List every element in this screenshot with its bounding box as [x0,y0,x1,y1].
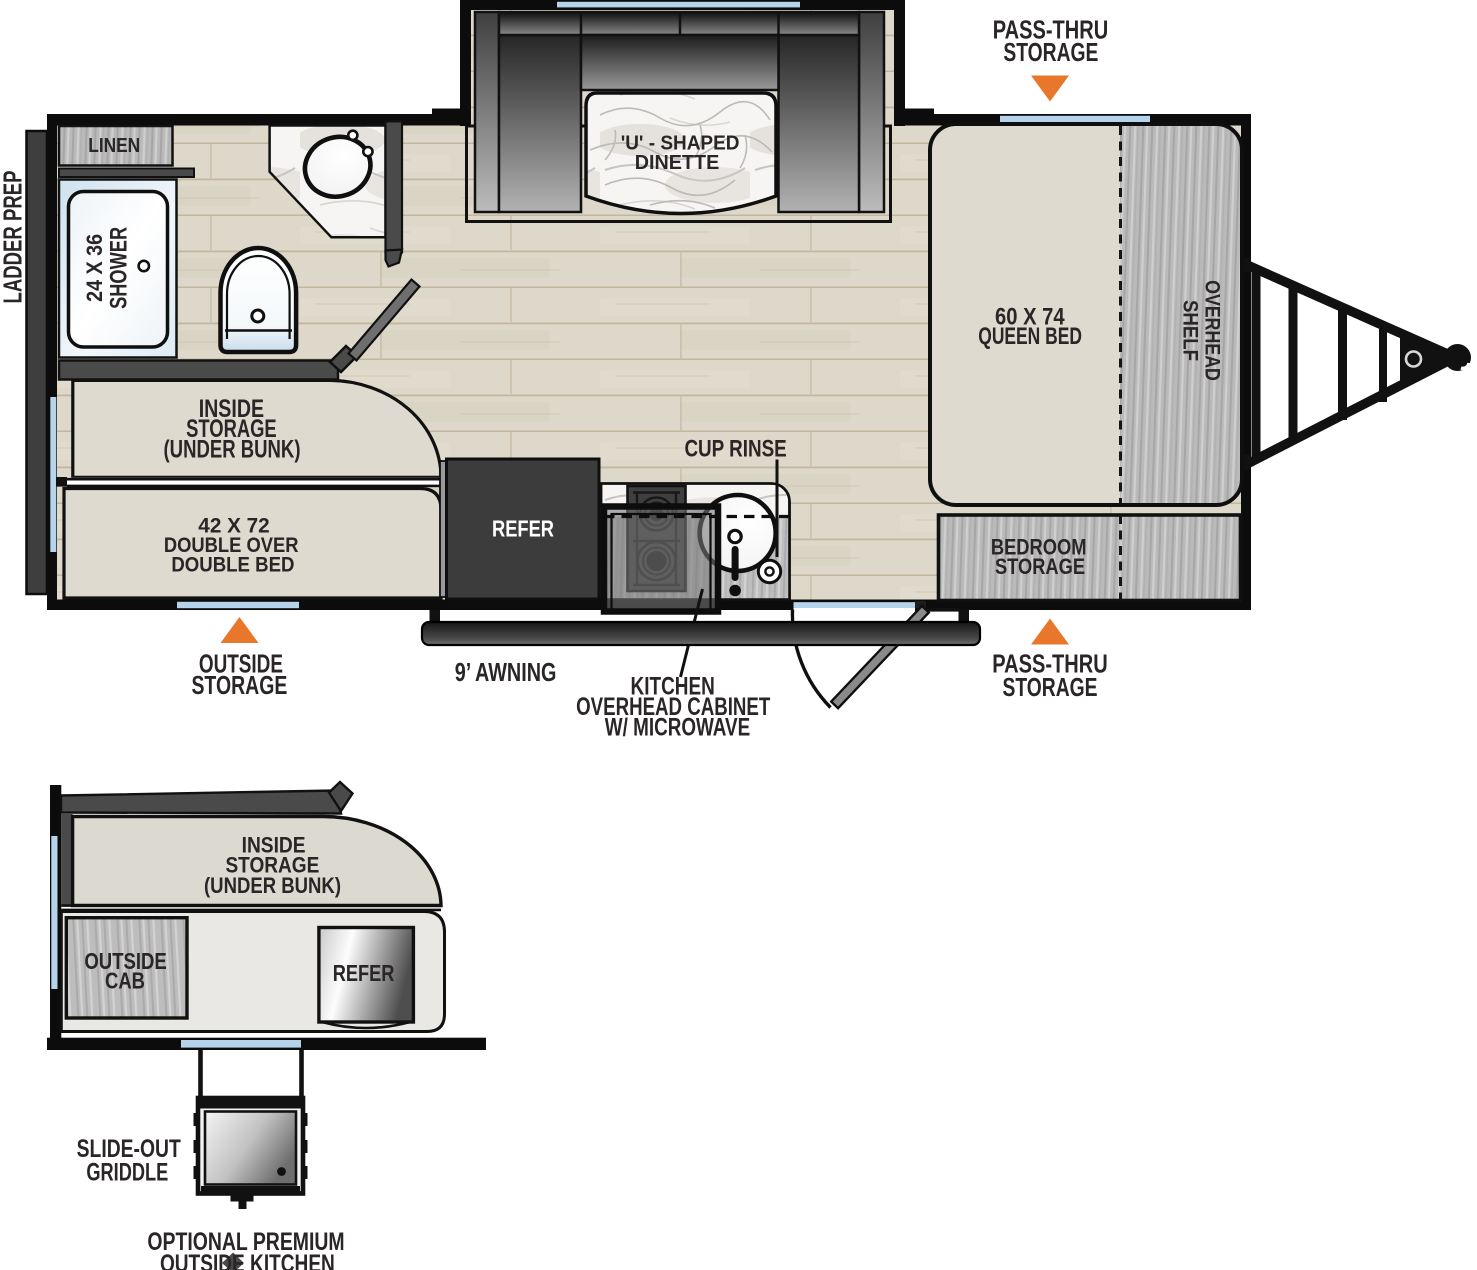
svg-text:REFER: REFER [492,516,554,542]
svg-text:GRIDDLE: GRIDDLE [86,1160,168,1187]
svg-text:DOUBLE BED: DOUBLE BED [171,553,294,577]
svg-text:REFER: REFER [333,960,395,986]
svg-text:STORAGE: STORAGE [1003,674,1098,702]
svg-text:9’ AWNING: 9’ AWNING [455,659,557,687]
svg-text:STORAGE: STORAGE [1003,39,1098,67]
svg-text:24 X 36: 24 X 36 [82,234,107,302]
svg-text:DINETTE: DINETTE [635,151,720,174]
svg-text:STORAGE: STORAGE [995,554,1085,579]
svg-text:W/ MICROWAVE: W/ MICROWAVE [605,715,750,742]
svg-text:LINEN: LINEN [88,134,140,157]
svg-text:OVERHEAD: OVERHEAD [1201,280,1225,381]
svg-text:SHELF: SHELF [1179,300,1203,361]
svg-text:CUP RINSE: CUP RINSE [684,437,786,463]
svg-text:OUTSIDE KITCHEN: OUTSIDE KITCHEN [160,1251,335,1270]
svg-text:SHOWER: SHOWER [106,227,133,309]
svg-text:QUEEN BED: QUEEN BED [978,323,1082,350]
svg-text:LADDER PREP: LADDER PREP [0,171,28,304]
svg-text:(UNDER BUNK): (UNDER BUNK) [164,435,301,463]
svg-text:STORAGE: STORAGE [191,672,287,700]
svg-text:CAB: CAB [105,968,145,994]
svg-text:(UNDER BUNK): (UNDER BUNK) [204,873,341,898]
